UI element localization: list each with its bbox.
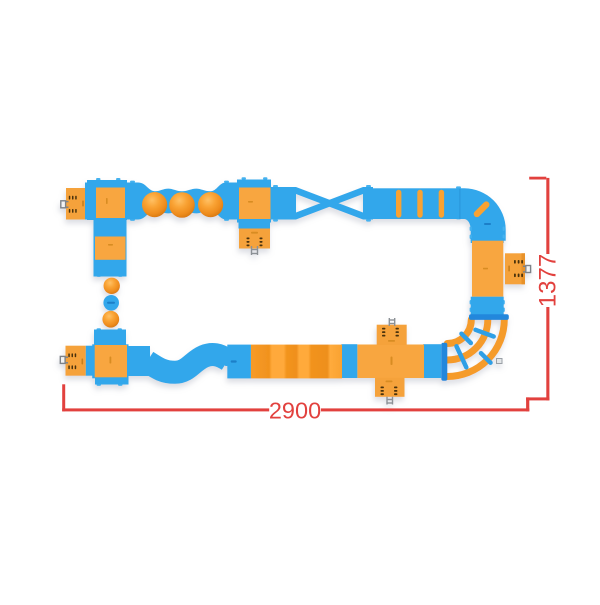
svg-text:1377: 1377 [535, 254, 562, 307]
svg-text:2900: 2900 [269, 398, 321, 424]
